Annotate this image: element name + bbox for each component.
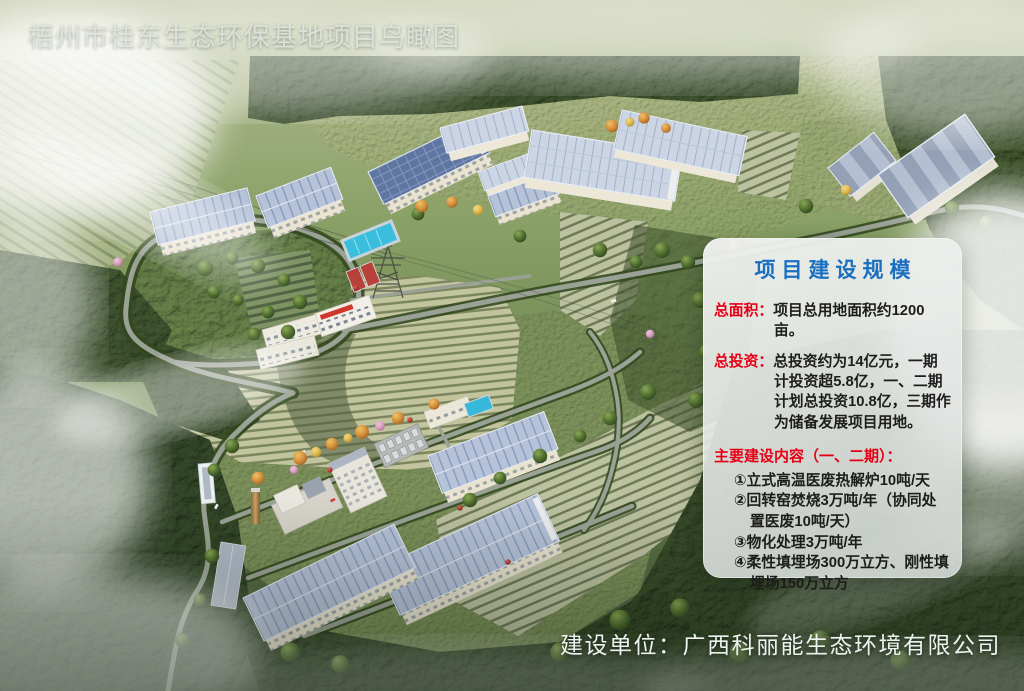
info-panel: 项目建设规模 总面积：项目总用地面积约1200亩。 总投资：总投资约为14亿元，…: [703, 238, 962, 578]
total-area-text: 项目总用地面积约1200亩。: [773, 303, 924, 339]
content-item-2: ②回转窑焚烧3万吨/年（协同处置医废10吨/天）: [734, 491, 951, 532]
panel-title: 项目建设规模: [714, 254, 951, 284]
total-investment-label: 总投资：: [714, 354, 773, 370]
total-investment-text: 总投资约为14亿元，一期计投资超5.8亿，一、二期计划总投资10.8亿，三期作为…: [773, 354, 951, 430]
total-area-row: 总面积：项目总用地面积约1200亩。: [714, 301, 951, 341]
poster: 梧州市桂东生态环保基地项目鸟瞰图 项目建设规模 总面积：项目总用地面积约1200…: [0, 0, 1024, 691]
builder-credit: 建设单位：广西科丽能生态环境有限公司: [560, 626, 1001, 660]
content-item-4: ④柔性填埋场300万立方、刚性填埋场150万立方: [734, 553, 951, 594]
content-header: 主要建设内容（一、二期）：: [714, 445, 951, 466]
total-area-label: 总面积：: [714, 303, 773, 319]
total-investment-row: 总投资：总投资约为14亿元，一期计投资超5.8亿，一、二期计划总投资10.8亿，…: [714, 352, 951, 432]
content-item-1: ①立式高温医废热解炉10吨/天: [734, 471, 951, 492]
page-title: 梧州市桂东生态环保基地项目鸟瞰图: [28, 17, 460, 54]
content-item-3: ③物化处理3万吨/年: [734, 533, 951, 554]
